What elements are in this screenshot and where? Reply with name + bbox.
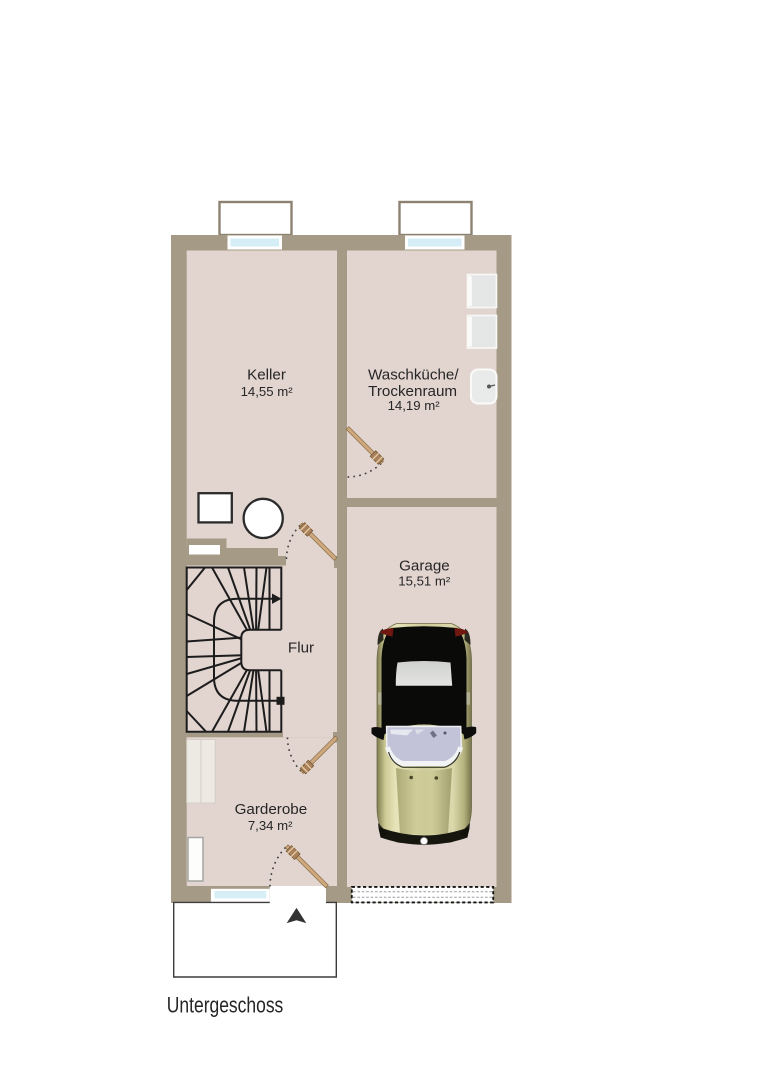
svg-text:7,34 m²: 7,34 m² bbox=[248, 818, 293, 833]
svg-text:Untergeschoss: Untergeschoss bbox=[167, 993, 283, 1018]
svg-text:Garage: Garage bbox=[399, 558, 450, 575]
svg-text:14,55 m²: 14,55 m² bbox=[241, 384, 294, 399]
svg-text:14,19 m²: 14,19 m² bbox=[388, 398, 441, 413]
svg-text:15,51 m²: 15,51 m² bbox=[398, 573, 451, 588]
svg-text:Flur: Flur bbox=[288, 640, 314, 657]
svg-text:Garderobe: Garderobe bbox=[235, 801, 308, 818]
svg-text:Waschküche/: Waschküche/ bbox=[368, 366, 459, 383]
svg-text:Keller: Keller bbox=[247, 367, 286, 384]
